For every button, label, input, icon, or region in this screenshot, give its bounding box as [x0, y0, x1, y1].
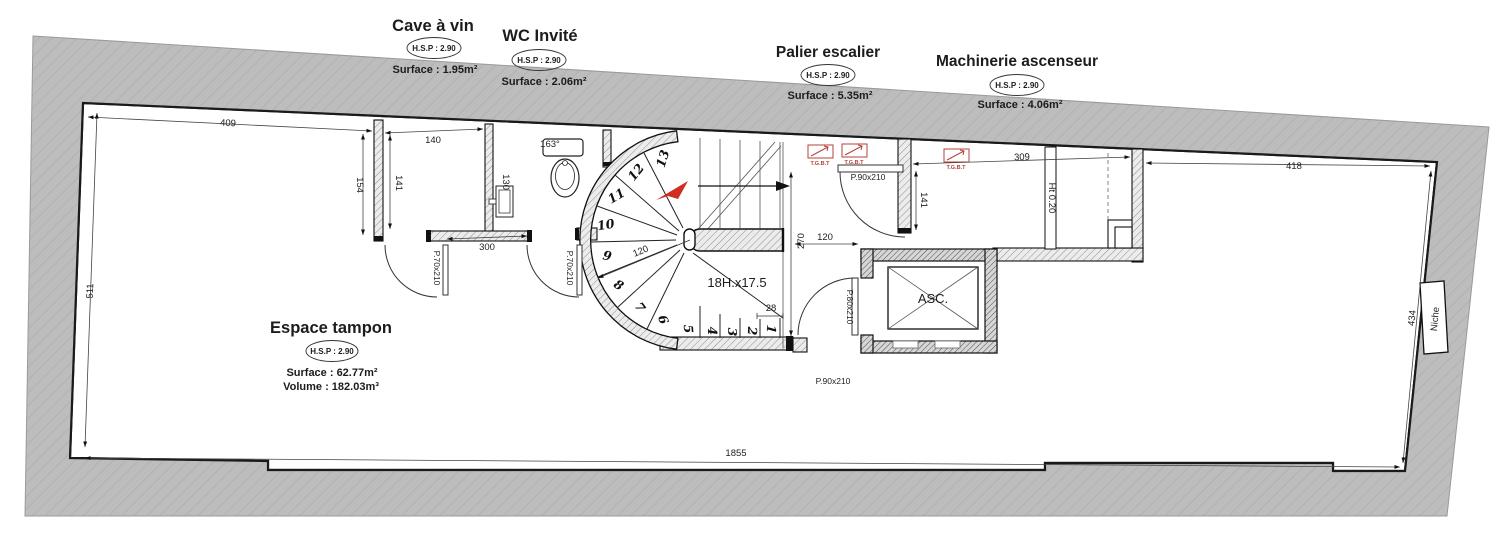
niche: Niche [1420, 281, 1448, 354]
hsp-label: H.S.P : 2.90 [310, 347, 354, 356]
stair-note: 18H.x17.5 [707, 275, 766, 290]
elevator-label: ASC. [918, 291, 948, 306]
dim-sink: 130 [500, 174, 511, 190]
floor-plan-canvas: 13 12 11 10 9 8 7 6 5 4 3 2 1 120 18H.x1… [0, 0, 1497, 538]
volume-label: Volume : 182.03m³ [283, 381, 379, 393]
room-title: Espace tampon [270, 319, 392, 337]
dim-mach-curb: Ht 0.20 [1046, 183, 1057, 214]
dim-stair-height: 270 [796, 233, 807, 249]
dim-stair-tread: 28 [766, 303, 777, 314]
surface-label: Surface : 5.35m² [788, 90, 873, 102]
palier-mach-wall [898, 139, 911, 233]
front-wall [428, 231, 530, 241]
room-title: Palier escalier [776, 44, 880, 61]
room-label-palier: Palier escalier H.S.P : 2.90 Surface : 5… [776, 44, 880, 102]
tgbt-label: T.G.B.T [811, 161, 831, 167]
surface-label: Surface : 1.95m² [393, 64, 478, 76]
floor-plan: 13 12 11 10 9 8 7 6 5 4 3 2 1 120 18H.x1… [0, 0, 1497, 538]
door-label-palier: P.90x210 [851, 172, 886, 182]
tgbt-panel: T.G.B.T [944, 149, 969, 171]
dim-top-right: 418 [1286, 161, 1302, 172]
hsp-label: H.S.P : 2.90 [806, 71, 850, 80]
hsp-label: H.S.P : 2.90 [412, 44, 456, 53]
stair-bottom-wall [660, 337, 793, 350]
tgbt-label: T.G.B.T [845, 160, 865, 166]
surface-label: Surface : 4.06m² [978, 99, 1063, 111]
surface-label: Surface : 2.06m² [502, 76, 587, 88]
room-title: WC Invité [502, 27, 577, 45]
room-label-cave: Cave à vin H.S.P : 2.90 Surface : 1.95m² [392, 17, 478, 76]
sink-basin [499, 190, 510, 213]
toilet-bowl-inner [556, 163, 575, 190]
stair-newel-post [684, 229, 695, 250]
dim-300: 300 [479, 242, 495, 253]
tgbt-panel: T.G.B.T [808, 145, 833, 167]
step-label: 10 [596, 216, 616, 234]
tgbt-panel: T.G.B.T [842, 144, 867, 166]
step-label: 1 [764, 324, 780, 334]
step-label: 3 [725, 328, 740, 337]
dim-154: 154 [354, 177, 365, 193]
dim-top-left: 409 [220, 118, 236, 130]
dim-left-wall: 511 [85, 283, 97, 299]
room-label-wc: WC Invité H.S.P : 2.90 Surface : 2.06m² [502, 27, 587, 88]
room-title: Machinerie ascenseur [936, 53, 1098, 70]
sink-tap [489, 199, 496, 204]
mach-right-wall [1132, 149, 1143, 262]
door-label-wc: P.70x210 [565, 251, 575, 286]
stair-landing [689, 229, 783, 251]
toilet-flush [563, 161, 568, 166]
cave-door-leaf [443, 245, 448, 295]
step-label: 4 [705, 326, 720, 335]
dim-palier-width: 120 [817, 232, 833, 243]
cave-left-wall [374, 120, 383, 241]
door-label-cave: P.70x210 [432, 251, 442, 286]
wc-door-leaf [577, 245, 582, 295]
dim-cave-height: 141 [393, 175, 404, 191]
door-label-elevator: P.80x210 [845, 290, 855, 325]
palier-bottom-stub [793, 338, 807, 352]
cave-wc-wall [485, 124, 493, 233]
palier-door-leaf [838, 165, 903, 172]
mach-bottom-wall [993, 248, 1143, 261]
dim-right-wall: 434 [1406, 310, 1419, 327]
surface-label: Surface : 62.77m² [286, 367, 377, 379]
dim-overall: 1855 [725, 448, 746, 459]
dim-wc-angle: 163° [540, 139, 560, 150]
step-label: 5 [681, 324, 697, 334]
hsp-label: H.S.P : 2.90 [517, 56, 561, 65]
door-label-tampon: P.90x210 [816, 376, 851, 386]
dim-cave-width: 140 [425, 135, 441, 146]
dim-mach-width: 309 [1014, 152, 1030, 163]
corner-pad-inner [1115, 227, 1132, 248]
stair-top-stub [603, 130, 611, 167]
niche-label: Niche [1429, 306, 1442, 331]
step-label: 2 [745, 325, 760, 336]
room-title: Cave à vin [392, 17, 474, 35]
dim-palier-height: 141 [918, 192, 929, 208]
hsp-label: H.S.P : 2.90 [995, 81, 1039, 90]
tgbt-label: T.G.B.T [947, 165, 967, 171]
